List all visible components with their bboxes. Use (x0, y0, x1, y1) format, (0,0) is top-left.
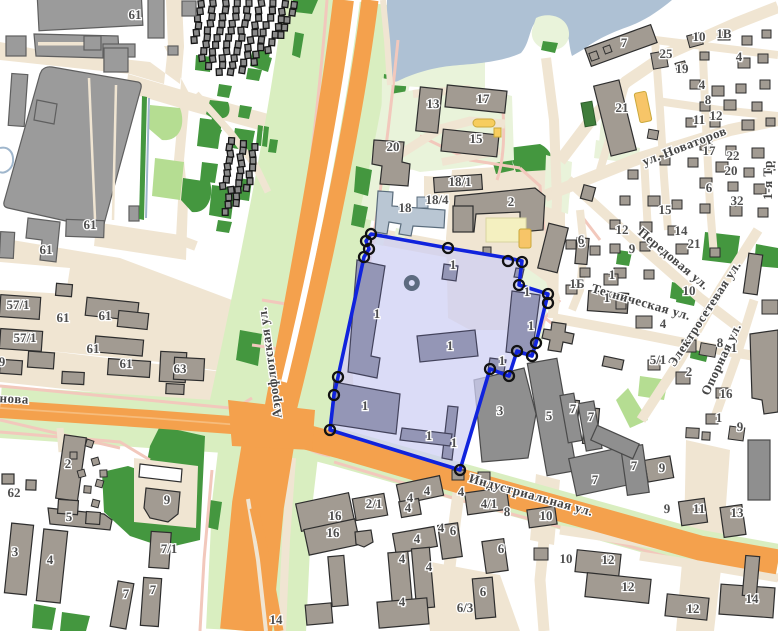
svg-text:13: 13 (731, 505, 745, 520)
svg-text:1: 1 (524, 284, 531, 299)
svg-text:5: 5 (546, 408, 553, 423)
svg-text:4: 4 (405, 500, 412, 515)
svg-text:18: 18 (399, 200, 413, 215)
svg-text:61: 61 (57, 310, 70, 325)
svg-text:9: 9 (664, 501, 671, 516)
svg-text:1В: 1В (716, 26, 732, 41)
svg-text:10: 10 (560, 551, 573, 566)
svg-text:1: 1 (447, 338, 454, 353)
svg-text:4: 4 (424, 483, 431, 498)
svg-text:12: 12 (710, 108, 723, 123)
svg-text:20: 20 (725, 163, 738, 178)
svg-text:1: 1 (362, 398, 369, 413)
svg-text:6: 6 (480, 584, 487, 599)
svg-text:1: 1 (609, 267, 616, 282)
svg-text:6/3: 6/3 (457, 600, 474, 615)
svg-text:5/1: 5/1 (650, 352, 667, 367)
svg-text:7: 7 (631, 458, 638, 473)
svg-text:8: 8 (705, 92, 712, 107)
svg-text:1-я Тр: 1-я Тр (760, 160, 775, 200)
svg-text:1: 1 (426, 428, 433, 443)
svg-text:2: 2 (508, 194, 515, 209)
svg-text:9: 9 (659, 460, 666, 475)
svg-text:63: 63 (174, 361, 188, 376)
svg-text:7/1: 7/1 (161, 541, 178, 556)
svg-text:11: 11 (693, 501, 705, 516)
svg-text:1: 1 (528, 318, 535, 333)
svg-text:7: 7 (123, 586, 130, 601)
svg-text:57/1: 57/1 (13, 330, 36, 345)
svg-text:21: 21 (688, 236, 701, 251)
svg-text:10: 10 (540, 508, 553, 523)
svg-text:15: 15 (470, 131, 484, 146)
svg-text:14: 14 (675, 223, 689, 238)
svg-text:4: 4 (660, 316, 667, 331)
svg-text:2: 2 (686, 364, 693, 379)
svg-text:13: 13 (427, 96, 441, 111)
svg-text:17: 17 (703, 143, 717, 158)
svg-text:4: 4 (414, 531, 421, 546)
svg-text:нова: нова (0, 390, 29, 407)
svg-text:1: 1 (374, 306, 381, 321)
svg-text:7: 7 (150, 582, 157, 597)
svg-text:17: 17 (477, 91, 491, 106)
svg-text:4: 4 (438, 520, 445, 535)
svg-text:18/4: 18/4 (425, 192, 449, 207)
svg-text:20: 20 (387, 139, 400, 154)
svg-text:1: 1 (499, 353, 506, 368)
svg-text:1: 1 (716, 410, 723, 425)
svg-text:61: 61 (40, 242, 53, 257)
svg-text:12: 12 (602, 552, 615, 567)
svg-text:4: 4 (399, 551, 406, 566)
svg-text:2: 2 (65, 456, 72, 471)
svg-text:3: 3 (12, 544, 19, 559)
svg-text:61: 61 (120, 356, 133, 371)
svg-text:9: 9 (629, 241, 636, 256)
svg-text:7: 7 (570, 401, 577, 416)
svg-text:3: 3 (497, 403, 504, 418)
svg-text:6: 6 (578, 232, 585, 247)
svg-text:8: 8 (717, 335, 724, 350)
svg-text:2/1: 2/1 (366, 496, 383, 511)
svg-text:22: 22 (727, 148, 740, 163)
svg-text:1: 1 (451, 435, 458, 450)
svg-text:9: 9 (164, 492, 171, 507)
svg-text:10: 10 (693, 29, 706, 44)
svg-text:61: 61 (99, 308, 112, 323)
svg-text:9: 9 (0, 354, 6, 369)
svg-text:12: 12 (687, 601, 700, 616)
svg-text:16: 16 (329, 508, 343, 523)
svg-text:8: 8 (504, 504, 511, 519)
svg-text:61: 61 (84, 217, 97, 232)
svg-text:61: 61 (129, 7, 142, 22)
svg-text:1Б: 1Б (569, 276, 584, 291)
svg-text:21: 21 (616, 100, 629, 115)
svg-text:14: 14 (746, 591, 760, 606)
svg-text:15: 15 (659, 202, 673, 217)
svg-text:18/1: 18/1 (448, 174, 471, 189)
svg-text:6: 6 (706, 180, 713, 195)
svg-text:12: 12 (622, 579, 635, 594)
svg-text:61: 61 (87, 341, 100, 356)
svg-text:5: 5 (66, 509, 73, 524)
svg-text:10: 10 (683, 283, 696, 298)
svg-text:9: 9 (737, 419, 744, 434)
svg-text:16: 16 (327, 525, 341, 540)
svg-text:7: 7 (592, 472, 599, 487)
svg-text:6: 6 (450, 523, 457, 538)
svg-text:57/1: 57/1 (6, 297, 29, 312)
svg-text:6: 6 (498, 541, 505, 556)
svg-text:4: 4 (47, 552, 54, 567)
svg-text:4: 4 (426, 559, 433, 574)
svg-text:1: 1 (450, 257, 457, 272)
svg-text:1: 1 (604, 290, 611, 305)
svg-text:4: 4 (458, 484, 465, 499)
svg-text:4: 4 (699, 77, 706, 92)
svg-text:25: 25 (660, 46, 674, 61)
svg-text:12: 12 (616, 222, 629, 237)
svg-text:4: 4 (399, 594, 406, 609)
svg-text:1: 1 (731, 340, 738, 355)
svg-text:11: 11 (693, 112, 705, 127)
svg-text:32: 32 (731, 193, 744, 208)
svg-text:14: 14 (270, 612, 284, 627)
svg-text:19: 19 (676, 61, 690, 76)
svg-text:7: 7 (588, 409, 595, 424)
svg-text:4/1: 4/1 (481, 496, 498, 511)
svg-text:4: 4 (736, 49, 743, 64)
svg-text:62: 62 (8, 485, 21, 500)
svg-text:7: 7 (621, 35, 628, 50)
svg-text:16: 16 (720, 386, 734, 401)
